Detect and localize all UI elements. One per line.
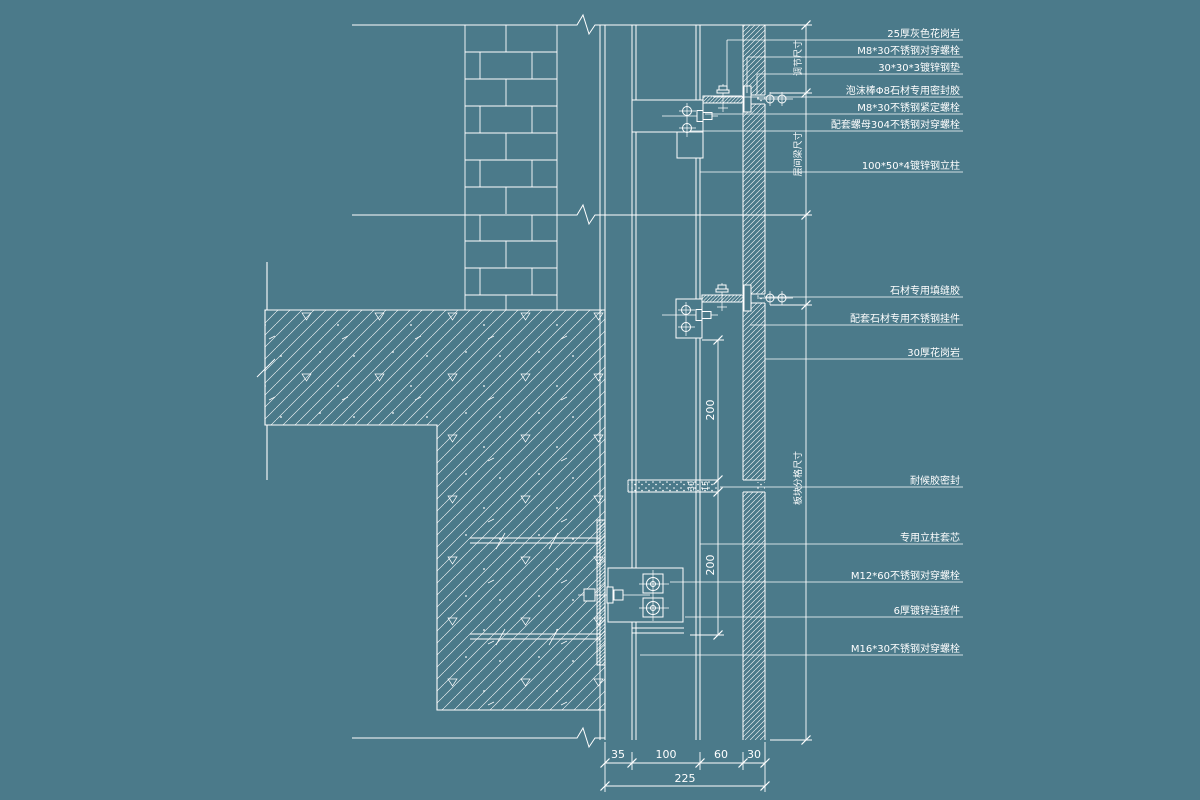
hex-bolt-washer (703, 113, 712, 120)
dim-100: 100 (656, 748, 677, 761)
dim-note-seg3: 板块分格尺寸 (792, 451, 804, 505)
callout-ss-hanger: 配套石材专用不锈钢挂件 (850, 312, 960, 325)
masonry-wall (465, 25, 557, 310)
mid-connector (662, 283, 793, 338)
dim-30: 30 (747, 748, 761, 761)
callout-steel-mullion: 100*50*4镀锌钢立柱 (862, 159, 960, 172)
dim-200-upper: 200 (704, 400, 717, 421)
callout-joint-sealant: 石材专用填缝胶 (890, 284, 960, 297)
callout-stone-finish: 25厚灰色花岗岩 (887, 27, 960, 40)
stone-panel (740, 25, 768, 740)
mullion-sleeve-lines (632, 628, 684, 633)
dim-joint-15: 15 (701, 481, 710, 491)
stone-curtain-wall-section-drawing: 35 100 60 30 225 200 200 30 15 调节尺寸 层间梁尺… (0, 0, 1200, 800)
anchor-bolt-washer (607, 587, 613, 603)
callout-m16-bolt: M16*30不锈钢对穿螺栓 (851, 642, 960, 655)
hanger-arm-plate (702, 295, 743, 302)
callout-galv-washer-pad: 30*30*3镀锌钢垫 (878, 61, 960, 74)
callout-m8-through-bolt: M8*30不锈钢对穿螺栓 (857, 44, 960, 57)
masonry-edges (465, 25, 557, 310)
hex-bolt-head (696, 310, 702, 321)
hex-bolt-washer (702, 312, 711, 319)
dim-line (770, 25, 812, 740)
anchor-bolt-head (584, 589, 595, 601)
brick-courses (465, 52, 557, 295)
top-connector (632, 84, 793, 158)
callout-304-nut-bolt: 配套螺母304不锈钢对穿螺栓 (831, 118, 960, 131)
callout-stone-panel: 30厚花岗岩 (907, 346, 960, 359)
callout-m8-set-bolt: M8*30不锈钢紧定螺栓 (857, 101, 960, 114)
dim-note-seg2: 层间梁尺寸 (792, 131, 804, 176)
dim-note-seg1: 调节尺寸 (792, 40, 804, 76)
dim-joint-30: 30 (687, 481, 696, 491)
break-line-bottom (352, 728, 605, 747)
dim-200-lower: 200 (704, 555, 717, 576)
embedded-steel-plate (597, 520, 605, 665)
callout-mullion-sleeve: 专用立柱套芯 (900, 531, 960, 544)
dimension-middle-vertical: 200 200 30 15 (687, 336, 724, 640)
dim-total-225: 225 (675, 772, 696, 785)
dim-35: 35 (611, 748, 625, 761)
concrete-slab (257, 262, 605, 710)
callout-m12-bolt: M12*60不锈钢对穿螺栓 (851, 569, 960, 582)
stone-back-plate (744, 285, 751, 311)
callout-foam-rod-sealant: 泡沫棒Φ8石材专用密封胶 (846, 84, 960, 97)
anchor-bolt-nut (614, 590, 623, 600)
cad-drawing-canvas: 35 100 60 30 225 200 200 30 15 调节尺寸 层间梁尺… (0, 0, 1200, 800)
set-bolt-washer (716, 289, 728, 292)
dimension-right-vertical: 调节尺寸 层间梁尺寸 板块分格尺寸 (770, 21, 812, 745)
callout-labels: 25厚灰色花岗岩 M8*30不锈钢对穿螺栓 30*30*3镀锌钢垫 泡沫棒Φ8石… (831, 27, 960, 655)
hex-bolt-head (697, 111, 703, 122)
set-bolt-washer (717, 90, 729, 93)
dim-60: 60 (714, 748, 728, 761)
set-bolt-head (718, 285, 726, 289)
dimension-bottom: 35 100 60 30 225 (601, 742, 770, 792)
stone-back-plate (744, 86, 751, 112)
callout-galv-connector: 6厚镀锌连接件 (894, 604, 960, 617)
callout-weather-sealant: 耐候胶密封 (910, 474, 960, 487)
set-bolt-head (719, 86, 727, 90)
